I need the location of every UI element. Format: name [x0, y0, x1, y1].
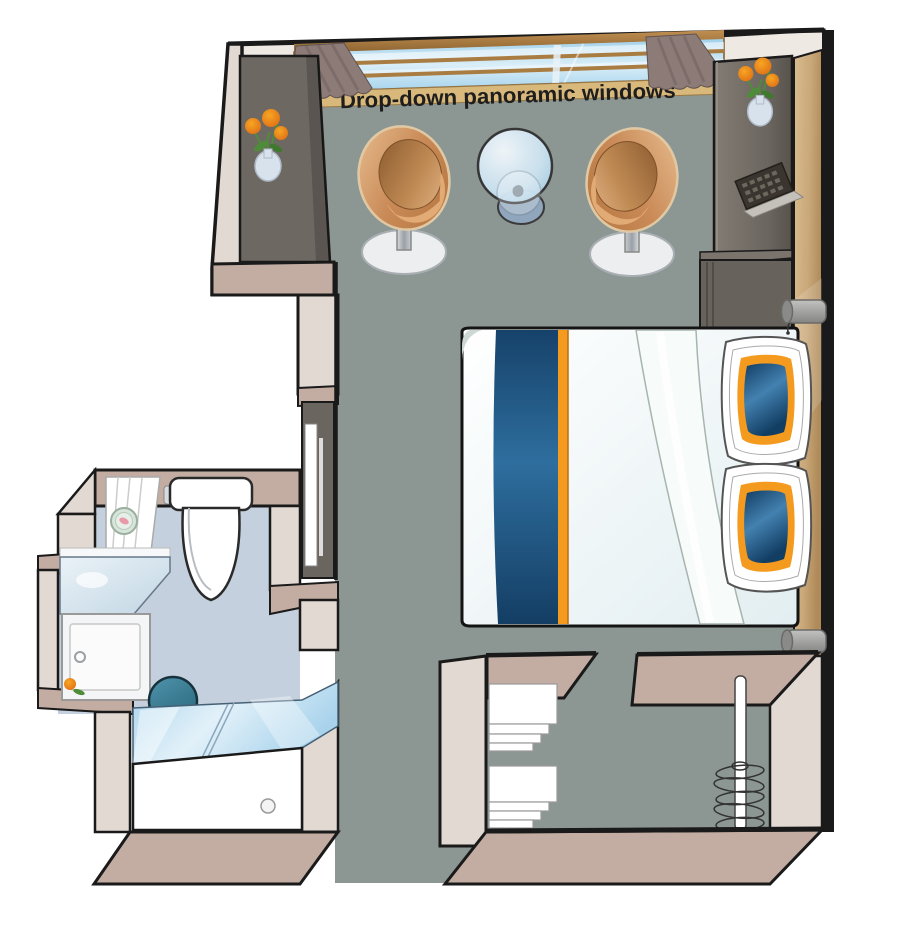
vanity-cabinet — [62, 614, 150, 700]
corner-cabinet — [240, 56, 330, 262]
round-mirror — [111, 508, 137, 534]
shower-drain — [261, 799, 275, 813]
panoramic-window: Drop-down panoramic windows — [289, 30, 728, 113]
bed-runner — [493, 330, 558, 624]
wall-step-top — [212, 262, 334, 295]
entrance-door — [302, 402, 334, 578]
pillow-top — [722, 337, 811, 465]
desk-unit — [700, 56, 803, 332]
double-bed — [462, 328, 811, 626]
pillow-bottom — [722, 464, 811, 592]
cabin-floor-plan: Drop-down panoramic windows — [0, 0, 900, 946]
bottom-wall — [445, 830, 822, 884]
